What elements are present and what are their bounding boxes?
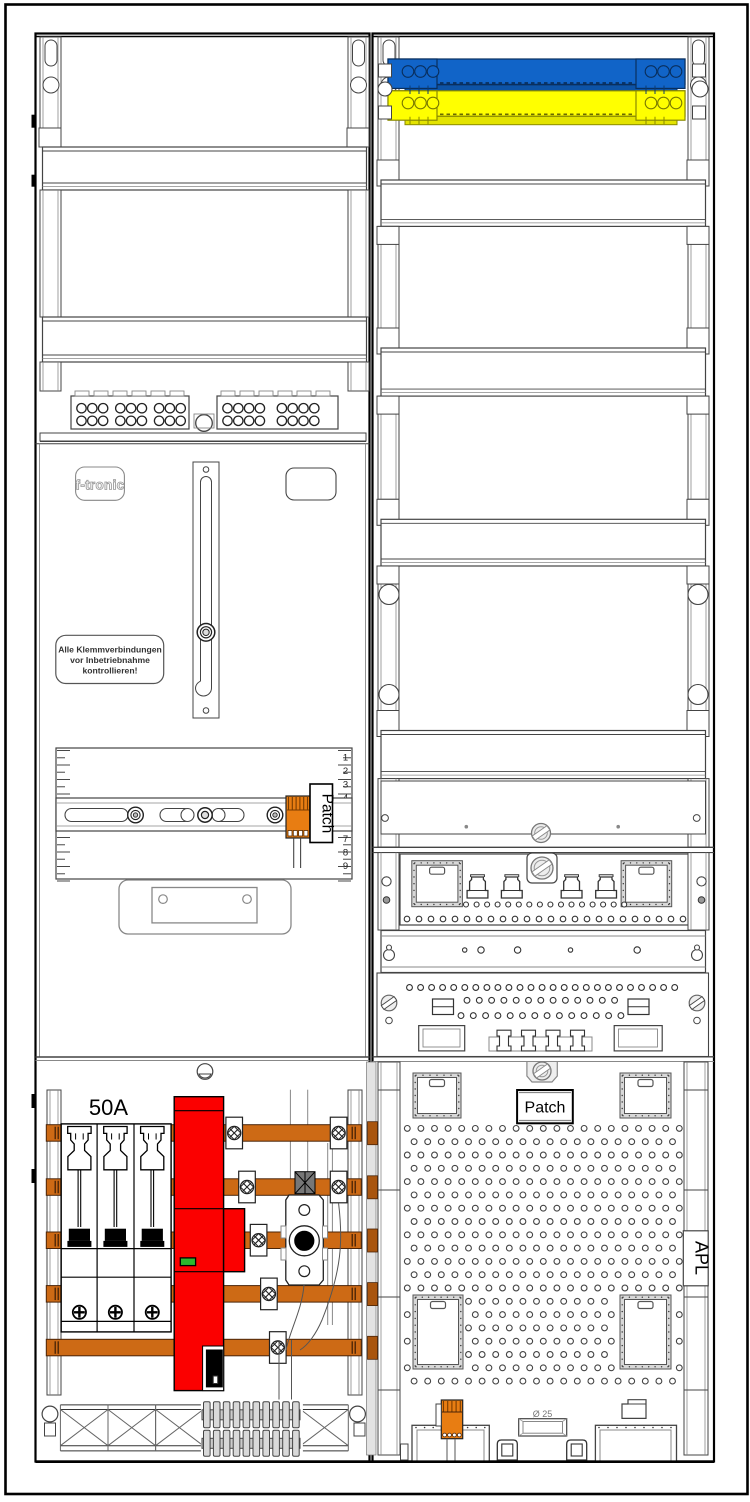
svg-text:Patch: Patch [525, 1100, 566, 1117]
svg-text:2: 2 [343, 766, 348, 777]
svg-text:1: 1 [343, 753, 348, 764]
svg-text:APL: APL [692, 1241, 712, 1275]
svg-text:3: 3 [343, 780, 348, 791]
svg-text:7: 7 [343, 834, 348, 845]
svg-text:vor Inbetriebnahme: vor Inbetriebnahme [70, 655, 150, 665]
svg-text:Ø 25: Ø 25 [533, 1409, 553, 1419]
svg-text:Alle Klemmverbindungen: Alle Klemmverbindungen [58, 645, 162, 655]
svg-text:9: 9 [343, 861, 348, 872]
svg-text:Patch: Patch [319, 794, 336, 834]
svg-text:kontrollieren!: kontrollieren! [83, 665, 138, 675]
svg-text:f-tronic: f-tronic [76, 478, 125, 493]
svg-text:50A: 50A [89, 1095, 128, 1120]
svg-text:8: 8 [343, 847, 348, 858]
